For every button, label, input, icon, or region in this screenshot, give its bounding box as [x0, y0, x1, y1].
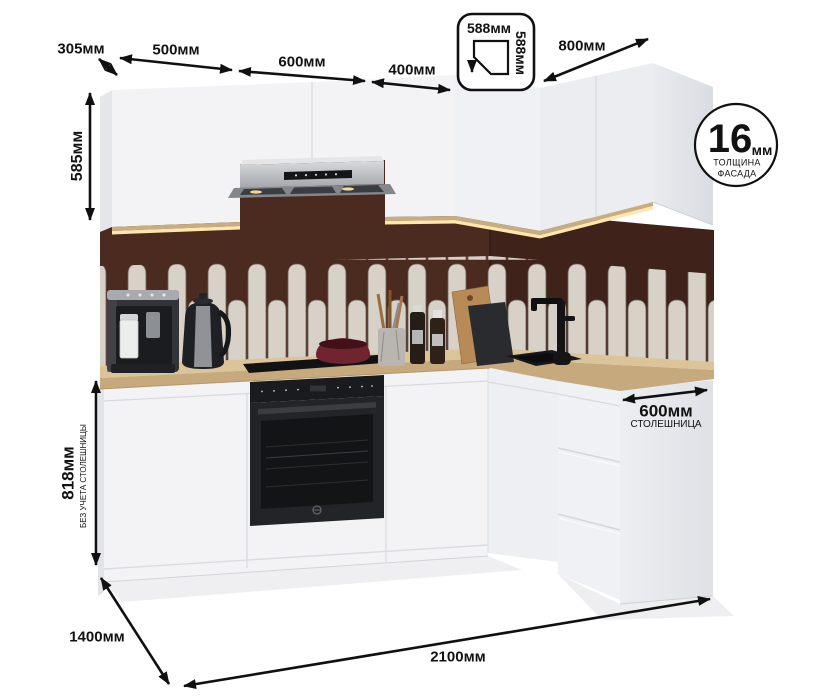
- facade-thickness-value: 16: [708, 119, 753, 159]
- upper-corner-cabinet: [455, 75, 540, 231]
- corner-width-label: 588мм: [467, 21, 511, 35]
- kitchen-scene: [0, 0, 816, 700]
- hood-light: [342, 187, 354, 190]
- dim-arrow-500: [120, 58, 232, 70]
- dim-label-600-countertop: 600мм: [639, 403, 693, 420]
- oven-glass: [261, 414, 373, 509]
- oven: [250, 375, 384, 526]
- dim-note-818: БЕЗ УЧЕТА СТОЛЕШНИЦЫ: [80, 424, 88, 528]
- dim-label-585: 585мм: [70, 131, 86, 181]
- dim-note-countertop: СТОЛЕШНИЦА: [630, 420, 701, 430]
- upper-cabinets: [100, 63, 713, 232]
- sink-base-door: [488, 368, 558, 562]
- drawer-unit: [558, 380, 620, 600]
- dim-label-500: 500мм: [152, 43, 199, 58]
- dim-arrow-600: [239, 71, 365, 81]
- dim-label-2100: 2100мм: [430, 650, 486, 665]
- kitchen-dimension-diagram: 305мм 500мм 600мм 400мм 800мм 588мм 588м…: [0, 0, 816, 700]
- facade-caption-line2: ФАСАДА: [718, 170, 757, 179]
- dim-arrow-2100: [184, 599, 710, 686]
- milk-container: [120, 320, 138, 358]
- dim-label-600: 600мм: [278, 55, 325, 70]
- hood-light: [250, 190, 262, 193]
- base-left-side-panel: [98, 387, 104, 596]
- dim-label-400: 400мм: [388, 63, 435, 78]
- dim-label-1400: 1400мм: [69, 630, 125, 645]
- dim-label-305: 305мм: [57, 42, 104, 57]
- upper-door-400: [385, 75, 455, 217]
- range-hood: [228, 156, 396, 198]
- upper-left-side-panel: [100, 90, 112, 232]
- facade-caption-line1: ТОЛЩИНА: [713, 159, 760, 168]
- coffee-dispenser: [146, 312, 160, 338]
- oven-display: [310, 385, 326, 391]
- corner-depth-label: 588мм: [514, 31, 528, 75]
- facade-thickness-unit: мм: [752, 143, 773, 157]
- dim-label-818: 818мм: [60, 446, 77, 500]
- dim-arrow-305: [99, 59, 117, 75]
- upper-door-500: [112, 85, 240, 227]
- coffee-machine: [107, 290, 179, 373]
- dim-label-800: 800мм: [558, 39, 605, 54]
- frying-pan: [316, 338, 370, 364]
